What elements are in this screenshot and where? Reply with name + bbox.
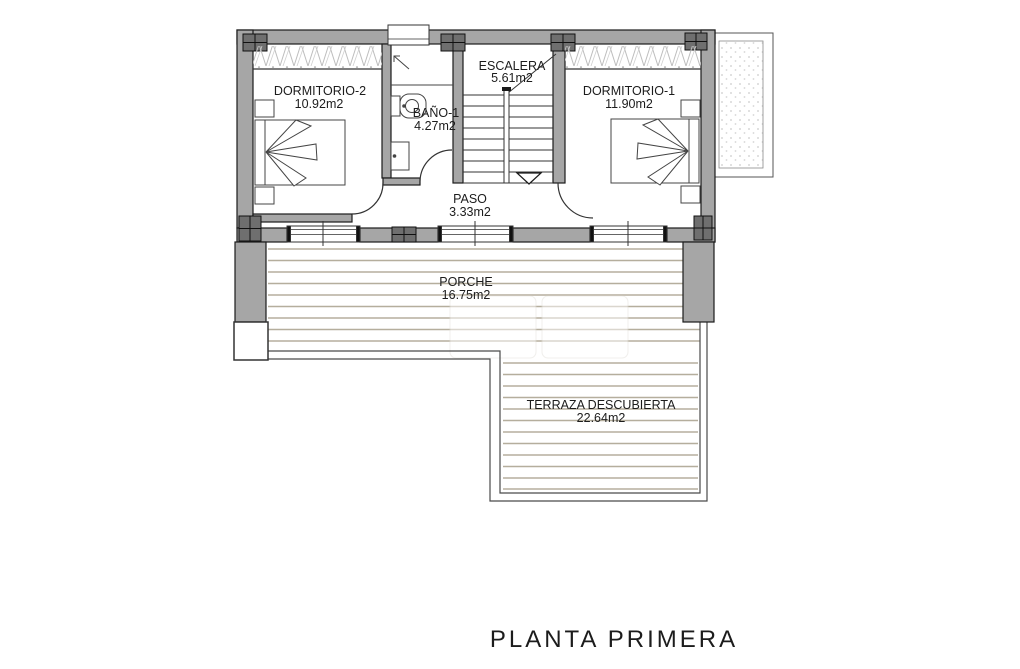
- label-porche: PORCHE: [439, 275, 492, 289]
- bed-dormitorio2: [255, 100, 345, 204]
- area-bano1: 4.27m2: [414, 119, 456, 133]
- stair-rail: [504, 90, 509, 183]
- area-porche: 16.75m2: [442, 288, 491, 302]
- door-arc-dormitorio1: [558, 183, 593, 218]
- side-roof-panel: [715, 33, 773, 177]
- label-dormitorio2: DORMITORIO-2: [274, 84, 366, 98]
- window-bottom-1: [287, 221, 360, 246]
- area-escalera: 5.61m2: [491, 71, 533, 85]
- wall-left: [237, 30, 253, 228]
- page-title: PLANTA PRIMERA: [490, 626, 738, 653]
- wall-stub-bath: [383, 178, 420, 185]
- door-arc-dormitorio2: [352, 183, 383, 214]
- nightstand: [681, 186, 700, 203]
- wall-bath-left: [382, 44, 391, 178]
- floor-plan-drawing: DORMITORIO-2 10.92m2 BAÑO-1 4.27m2 ESCAL…: [0, 0, 1020, 669]
- floor-plan-page: DORMITORIO-2 10.92m2 BAÑO-1 4.27m2 ESCAL…: [0, 0, 1020, 669]
- stairs-down-arrow-icon: [517, 173, 541, 184]
- window-bottom-3: [590, 221, 667, 246]
- wall-top: [237, 30, 715, 44]
- area-dormitorio1: 11.90m2: [605, 97, 653, 111]
- label-bano1: BAÑO-1: [413, 106, 460, 120]
- column-bottom-right: [694, 216, 712, 240]
- wall-bottom-seg-right: [513, 228, 590, 242]
- area-paso: 3.33m2: [449, 205, 491, 219]
- column-bottom-left: [239, 216, 261, 241]
- door-arc-bath: [420, 150, 452, 181]
- window-bottom-2: [438, 221, 513, 246]
- terrace-deck-lines: [503, 363, 698, 489]
- window-top: [388, 25, 429, 45]
- porch-pillar-left: [235, 242, 266, 322]
- column-top-bath: [441, 34, 465, 51]
- terrace-pillar-outline: [234, 322, 268, 360]
- watermark: [450, 296, 628, 358]
- area-dormitorio2: 10.92m2: [295, 97, 344, 111]
- nightstand: [681, 100, 700, 117]
- furniture: [255, 100, 700, 204]
- side-roof-gravel: [719, 41, 763, 168]
- stair-rail-cap: [502, 87, 511, 91]
- area-terraza: 22.64m2: [577, 411, 626, 425]
- porch-pillar-right: [683, 242, 714, 322]
- label-paso: PASO: [453, 192, 487, 206]
- label-dormitorio1: DORMITORIO-1: [583, 84, 675, 98]
- closet-dormitorio1: [565, 46, 701, 69]
- bed-dormitorio1: [611, 100, 700, 203]
- closet-dormitorio2: [253, 46, 382, 69]
- shower-icon: [394, 56, 409, 69]
- closets: [253, 46, 701, 69]
- wall-right: [701, 30, 715, 242]
- wall-stairs-dorm1: [553, 44, 565, 183]
- column-bottom-mid: [392, 227, 416, 242]
- label-terraza: TERRAZA DESCUBIERTA: [527, 398, 677, 412]
- sink-icon: [391, 142, 409, 170]
- nightstand: [255, 187, 274, 204]
- wall-stub-dorm2: [253, 214, 352, 222]
- nightstand: [255, 100, 274, 117]
